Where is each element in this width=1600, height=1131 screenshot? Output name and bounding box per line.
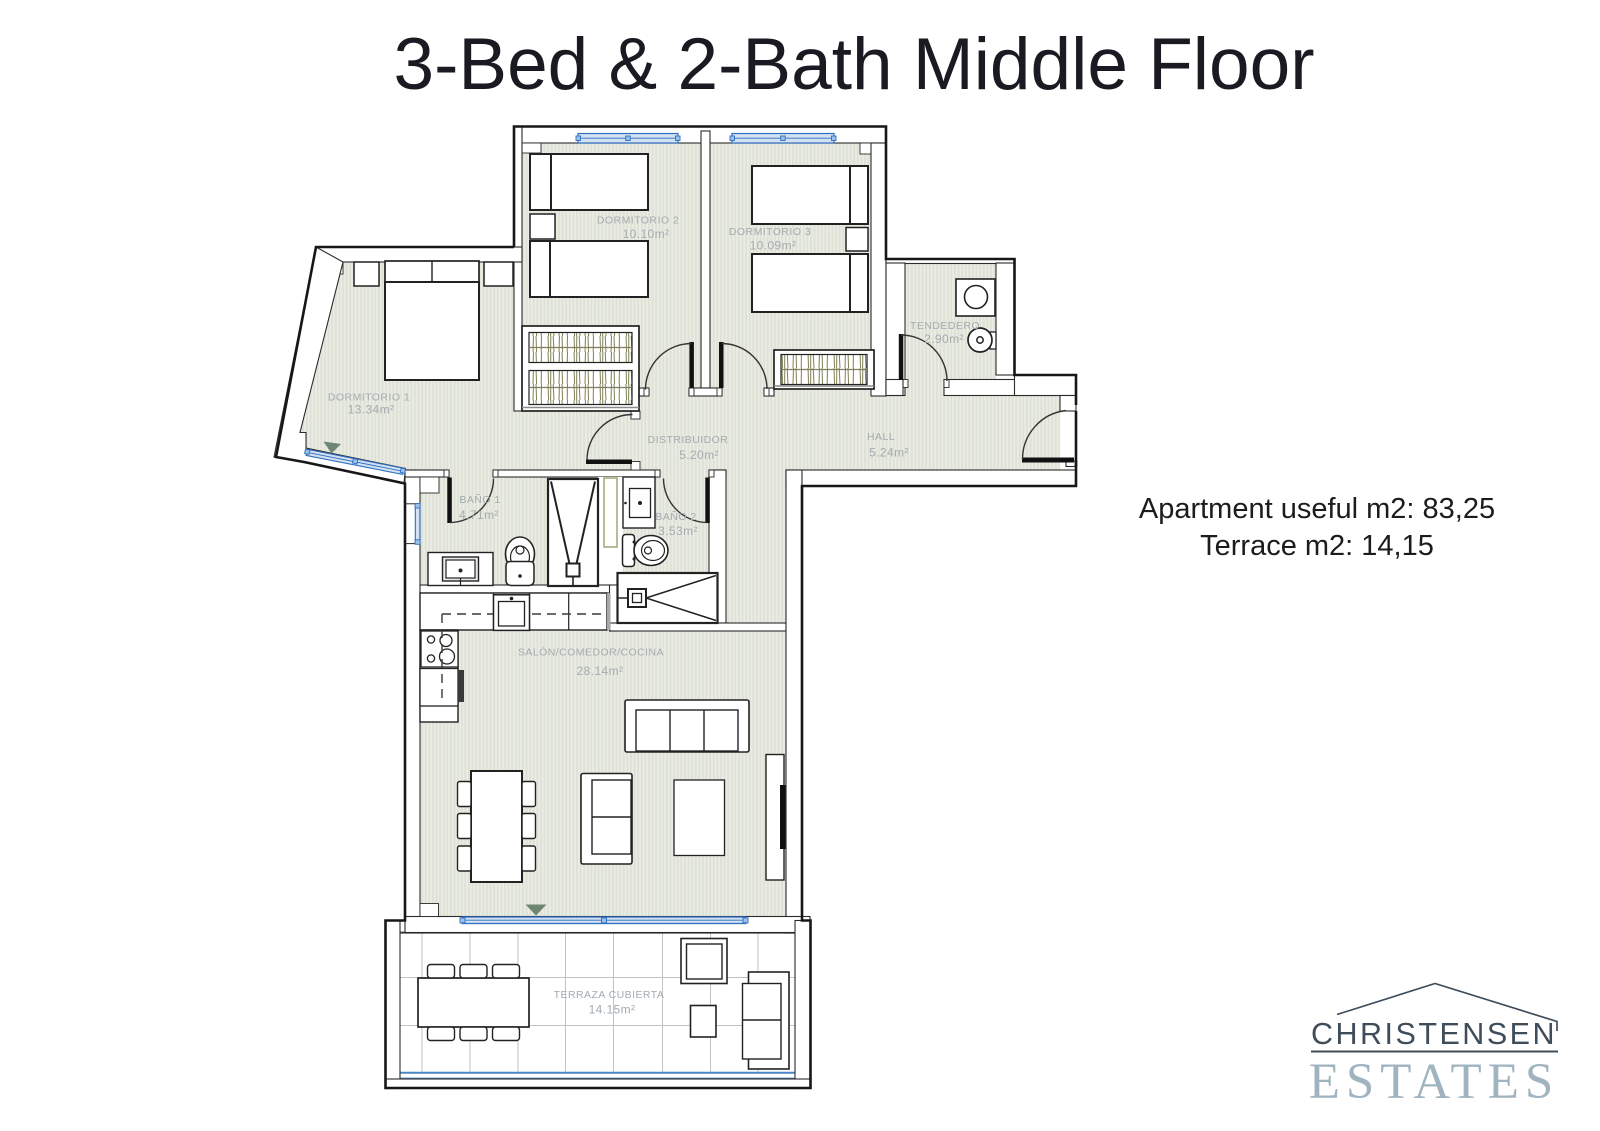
svg-text:Apartment useful m2: 83,25: Apartment useful m2: 83,25 xyxy=(1139,493,1495,525)
svg-text:Terrace m2: 14,15: Terrace m2: 14,15 xyxy=(1200,530,1434,562)
svg-text:ESTATES: ESTATES xyxy=(1309,1054,1559,1110)
svg-text:13.34m²: 13.34m² xyxy=(348,403,395,417)
svg-text:DISTRIBUIDOR: DISTRIBUIDOR xyxy=(648,434,729,446)
svg-text:14.15m²: 14.15m² xyxy=(589,1003,636,1017)
svg-text:10.09m²: 10.09m² xyxy=(750,239,797,253)
svg-text:3.53m²: 3.53m² xyxy=(658,524,698,538)
svg-text:3-Bed & 2-Bath Middle Floor: 3-Bed & 2-Bath Middle Floor xyxy=(393,24,1314,105)
svg-text:BAÑO 1: BAÑO 1 xyxy=(459,493,500,506)
svg-text:SALÓN/COMEDOR/COCINA: SALÓN/COMEDOR/COCINA xyxy=(518,646,664,659)
svg-text:TENDEDERO: TENDEDERO xyxy=(910,320,980,332)
svg-text:DORMITORIO 3: DORMITORIO 3 xyxy=(729,226,811,238)
svg-text:5.20m²: 5.20m² xyxy=(679,448,719,462)
svg-text:CHRISTENSEN: CHRISTENSEN xyxy=(1311,1017,1557,1051)
svg-text:28.14m²: 28.14m² xyxy=(577,664,624,678)
svg-text:2.90m²: 2.90m² xyxy=(924,332,964,346)
svg-text:10.10m²: 10.10m² xyxy=(623,227,670,241)
svg-text:HALL: HALL xyxy=(867,431,895,443)
svg-text:TERRAZA CUBIERTA: TERRAZA CUBIERTA xyxy=(554,989,665,1001)
svg-text:5.24m²: 5.24m² xyxy=(869,446,909,460)
svg-text:BAÑO 2: BAÑO 2 xyxy=(655,510,696,523)
svg-text:4.71m²: 4.71m² xyxy=(459,508,499,522)
svg-text:DORMITORIO 2: DORMITORIO 2 xyxy=(597,215,679,227)
